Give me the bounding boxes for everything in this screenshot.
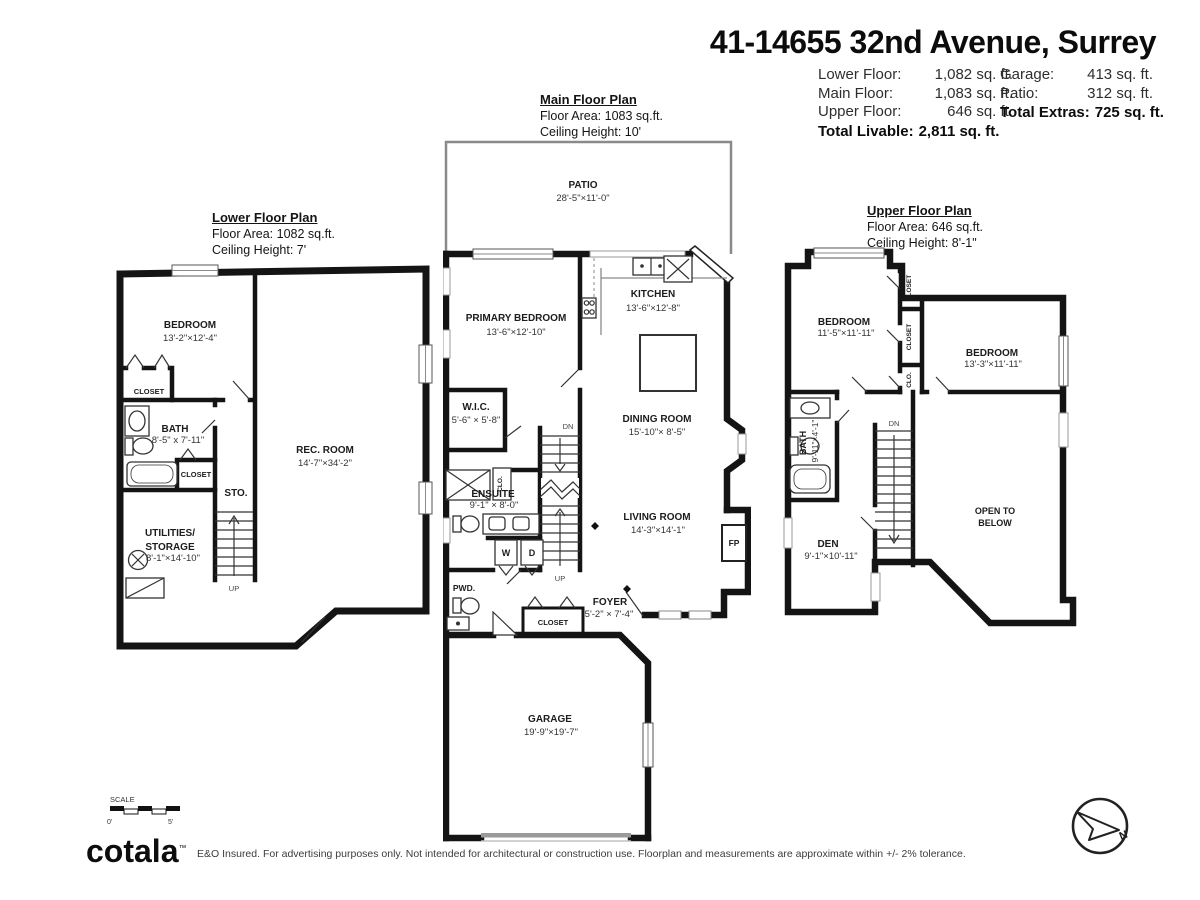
bedroom-door [561,370,578,387]
room-dims-garage: 19'-9"×19'-7" [524,727,578,738]
upper-plan-labels: BEDROOM 11'-5"×11'-11" BEDROOM 13'-3"×11… [798,275,1022,562]
open-to-below-label-2: BELOW [978,518,1012,528]
scale-zero: 0' [107,819,112,826]
room-dims-foyer: 5'-2" × 7'-4" [585,609,634,620]
room-dims-rec-room: 14'-7"×34'-2" [298,458,352,469]
room-label-primary-bedroom: PRIMARY BEDROOM [466,313,567,324]
room-label-kitchen: KITCHEN [631,289,675,300]
room-dims-dining: 15'-10"× 8'-5" [629,427,686,438]
dryer-label: D [529,548,536,558]
room-label-bedroom1: BEDROOM [818,317,870,328]
area-stats-right: Garage: 413 sq. ft. Patio: 312 sq. ft. T… [1000,66,1153,123]
stat-upper-floor: Upper Floor: 646 sq. ft. [818,103,1013,122]
stat-label: Upper Floor: [818,103,901,122]
room-label-patio: PATIO [568,180,597,191]
garage-door [481,833,631,841]
window [443,330,450,358]
room-label-closet1: CLOSET [906,275,913,301]
room-label-bath: BATH [161,424,188,435]
window [659,611,681,619]
room-label-den: DEN [817,539,838,550]
room-dims-den: 9'-1"×10'-11" [804,551,857,562]
fireplace-label: FP [729,538,740,548]
room-label-storage: STO. [224,488,247,499]
window [443,518,450,543]
stairs-dn-label: DN [563,422,574,431]
kitchen-fixtures [582,256,727,391]
toilet-tank [125,438,133,455]
post-marker [591,522,599,530]
room-dims-bath: 8'-5" x 7'-11" [152,435,204,446]
pwd-door [507,570,521,584]
room-label-closet2: CLOSET [181,470,212,479]
toilet-tank [453,598,461,613]
room-dims-wic: 5'-6" × 5'-8" [452,415,501,426]
room-label-bedroom2: BEDROOM [966,348,1018,359]
stat-main-floor: Main Floor: 1,083 sq. ft. [818,85,1013,104]
room-dims-bedroom: 13'-2"×12'-4" [163,333,217,344]
closet-door [887,330,900,343]
toilet-tank [790,437,798,455]
open-to-below-label-1: OPEN TO [975,506,1015,516]
toilet-icon [133,438,153,454]
page-title: 41-14655 32nd Avenue, Surrey [710,24,1156,61]
upper-plan-stairs [875,431,913,548]
window [443,268,450,295]
room-dims-primary-bedroom: 13'-6"×12'-10" [486,327,545,338]
room-dims-kitchen: 13'-6"×12'-8" [626,303,680,314]
room-dims-ensuite: 9'-1" × 8'-0" [470,500,519,511]
upper-plan-area: Floor Area: 646 sq.ft. [867,219,983,235]
room-label-bath: BATH [798,431,808,455]
north-arrow-icon [1077,812,1119,840]
bath-door [837,410,849,423]
main-plan-header: Main Floor Plan Floor Area: 1083 sq.ft. … [540,92,663,140]
bay-window [738,434,746,454]
stairs-dn-label: DN [889,419,900,428]
room-label-living: LIVING ROOM [623,512,690,523]
clo-door [889,376,900,388]
room-dims-patio: 28'-5"×11'-0" [556,193,609,204]
kitchen-island [640,335,696,391]
window [1059,413,1068,447]
window [784,518,792,548]
main-plan-stairs [540,436,580,566]
washer-label: W [502,548,511,558]
room-label-wic: W.I.C. [462,402,489,413]
stat-total-extras: Total Extras:725 sq. ft. [1000,104,1153,123]
upper-plan-walls [788,252,1073,623]
main-plan-title: Main Floor Plan [540,92,663,108]
room-dims-living: 14'-3"×14'-1" [631,525,685,536]
scale-five: 5' [168,819,173,826]
stat-total-livable: Total Livable:2,811 sq. ft. [818,123,1013,142]
window [689,611,711,619]
stat-value: 312 sq. ft. [1087,85,1153,104]
main-plan-walls [446,254,748,838]
upper-floor-plan: BEDROOM 11'-5"×11'-11" BEDROOM 13'-3"×11… [782,243,1078,635]
bedroom2-door [936,377,950,392]
main-floor-plan: PATIO 28'-5"×11'-0" PRIMARY BEDROOM 13'-… [443,138,751,850]
closet-door [887,276,900,289]
stat-lower-floor: Lower Floor: 1,082 sq. ft. [818,66,1013,85]
lower-plan-title: Lower Floor Plan [212,210,335,226]
lower-plan-stairs [215,512,253,576]
wic-door [505,426,521,438]
stat-value: 413 sq. ft. [1087,66,1153,85]
stat-value: 2,811 sq. ft. [919,123,1000,140]
room-label-bedroom: BEDROOM [164,320,216,331]
room-dims-bedroom1: 11'-5"×11'-11" [817,328,874,339]
room-label-garage: GARAGE [528,714,572,725]
main-plan-labels: PATIO 28'-5"×11'-0" PRIMARY BEDROOM 13'-… [452,180,740,738]
main-plan-area: Floor Area: 1083 sq.ft. [540,108,663,124]
stat-label: Total Livable: [818,123,914,140]
stat-garage: Garage: 413 sq. ft. [1000,66,1153,85]
room-label-utilities-1: UTILITIES/ [145,528,195,539]
room-label-ensuite: ENSUITE [471,489,515,500]
area-stats-left: Lower Floor: 1,082 sq. ft. Main Floor: 1… [818,66,1013,141]
toilet-tank [453,516,461,532]
room-label-clo: CLO. [906,372,913,388]
window [871,573,880,601]
logo-text: cotala [86,833,178,869]
stat-patio: Patio: 312 sq. ft. [1000,85,1153,104]
logo-trademark: ™ [178,843,186,852]
lower-plan-area: Floor Area: 1082 sq.ft. [212,226,335,242]
stat-value: 725 sq. ft. [1095,104,1164,121]
stat-label: Main Floor: [818,85,893,104]
cotala-logo: cotala™ [86,833,186,870]
compass: N [1055,786,1145,870]
stairs-up-label: UP [555,574,565,583]
stairs-up-label: UP [229,584,239,593]
toilet-icon [461,516,479,532]
stat-label: Patio: [1000,85,1038,104]
stat-label: Total Extras: [1000,104,1090,121]
room-label-rec-room: REC. ROOM [296,445,354,456]
disclaimer-text: E&O Insured. For advertising purposes on… [197,848,966,860]
room-dims-bedroom2: 13'-3"×11'-11" [964,359,1022,370]
room-label-dining: DINING ROOM [623,414,692,425]
lower-floor-plan: BEDROOM 13'-2"×12'-4" CLOSET BATH 8'-5" … [112,260,434,652]
toilet-icon [461,598,479,614]
room-label-foyer-closet: CLOSET [538,618,569,627]
room-label-foyer: FOYER [593,597,628,608]
lower-plan-ceiling: Ceiling Height: 7' [212,242,335,258]
room-label-closet: CLOSET [134,387,165,396]
room-dims-bath: 9'-11"×4'-1" [810,420,820,463]
post-marker [623,585,631,593]
scale-label: SCALE [110,795,135,804]
garage-entry-door [493,612,517,635]
stat-label: Garage: [1000,66,1054,85]
scale-bar: SCALE 0' 5' [106,793,196,829]
main-plan-doors [493,246,733,635]
upper-plan-title: Upper Floor Plan [867,203,983,219]
lower-plan-labels: BEDROOM 13'-2"×12'-4" CLOSET BATH 8'-5" … [134,320,354,593]
stat-label: Lower Floor: [818,66,901,85]
lower-plan-header: Lower Floor Plan Floor Area: 1082 sq.ft.… [212,210,335,258]
room-dims-utilities: 8'-1"×14'-10" [146,553,200,564]
den-door [861,517,875,531]
room-label-pwd: PWD. [453,583,475,593]
room-label-clo: CLO. [497,476,504,492]
room-label-closet2: CLOSET [906,324,913,350]
room-label-utilities-2: STORAGE [145,542,195,553]
bedroom1-door [852,377,867,392]
